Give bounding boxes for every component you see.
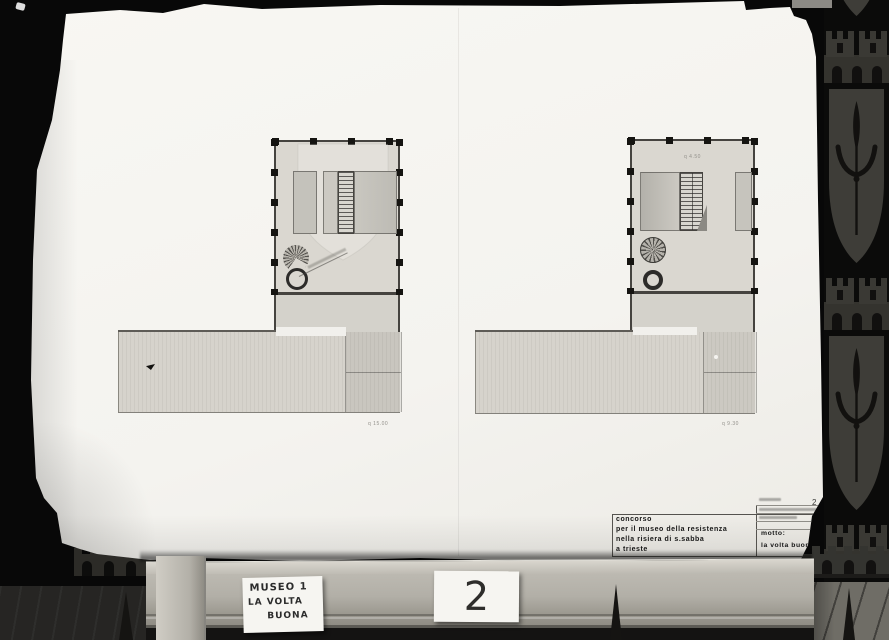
elevation-label: q 4.50: [684, 154, 701, 160]
titleblock-line: nella risiera di s.sabba: [616, 535, 704, 545]
room: [735, 172, 752, 231]
room: [323, 171, 338, 234]
floor-plan-right: q 4.50: [630, 139, 755, 294]
column-ticks-right: [396, 139, 403, 295]
band-notch: [276, 327, 346, 336]
column-ticks-left: [627, 138, 634, 294]
titleblock-row-line: [756, 521, 828, 522]
titleblock-row-line: [756, 513, 828, 514]
paper-corner-shadow: [28, 420, 158, 570]
titleblock-faint-text: [759, 498, 781, 501]
band-end-room: [703, 332, 757, 413]
band-divider: [704, 372, 756, 373]
board-number-card: 2: [434, 571, 519, 623]
band-left-edge: [475, 332, 476, 413]
band-notch: [633, 327, 697, 335]
motto-label: motto:: [761, 529, 785, 539]
drawing-sheet: q 15.00 q 4.50 q 9.30: [0, 0, 889, 640]
titleblock-line: per il museo della resistenza: [616, 525, 727, 535]
room: [293, 171, 317, 234]
paper-edge-shadow: [28, 60, 78, 540]
band-end-room: [345, 332, 402, 412]
staircase: [338, 171, 354, 234]
titleblock-faint-text: [759, 508, 817, 511]
circular-spiral-stair-icon: [640, 237, 666, 263]
room: [354, 171, 397, 234]
handwritten-line: LA VOLTA: [248, 596, 303, 607]
band-left-edge: [118, 332, 119, 412]
backdrop-gray-sliver: [792, 0, 832, 8]
column-ticks-left: [271, 139, 278, 295]
circular-element: [286, 268, 308, 290]
board-number: 2: [464, 576, 490, 616]
lower-wing-plan-left: [118, 332, 400, 413]
easel-post: [156, 556, 206, 640]
handwritten-line: MUSEO 1: [249, 581, 307, 594]
lower-wing-plan-right: [475, 332, 755, 414]
band-divider: [346, 372, 401, 373]
column-ticks-right: [751, 138, 758, 294]
photo-of-competition-drawing-board: q 15.00 q 4.50 q 9.30: [0, 0, 889, 640]
film-speck: [15, 2, 26, 11]
staircase: [680, 172, 703, 231]
elevation-label: q 9.30: [722, 421, 739, 427]
titleblock-faint-text: [759, 516, 797, 519]
titleblock-row-line: [756, 505, 828, 506]
circular-element: [643, 270, 663, 290]
stair-divider: [692, 173, 693, 230]
paper-fold-line: [458, 8, 459, 556]
elevation-label: q 15.00: [368, 421, 388, 427]
titleblock-line: concorso: [616, 515, 652, 525]
pinhole-speck: [714, 355, 718, 359]
column-ticks-top: [628, 137, 757, 144]
room: [640, 172, 680, 231]
paper-smudge: [797, 12, 806, 18]
handwritten-line: BUONA: [267, 610, 309, 621]
floor-plan-left: [274, 140, 400, 295]
handwritten-label-card: MUSEO 1 LA VOLTA BUONA: [242, 576, 323, 633]
sheet-number: 2: [812, 498, 816, 507]
